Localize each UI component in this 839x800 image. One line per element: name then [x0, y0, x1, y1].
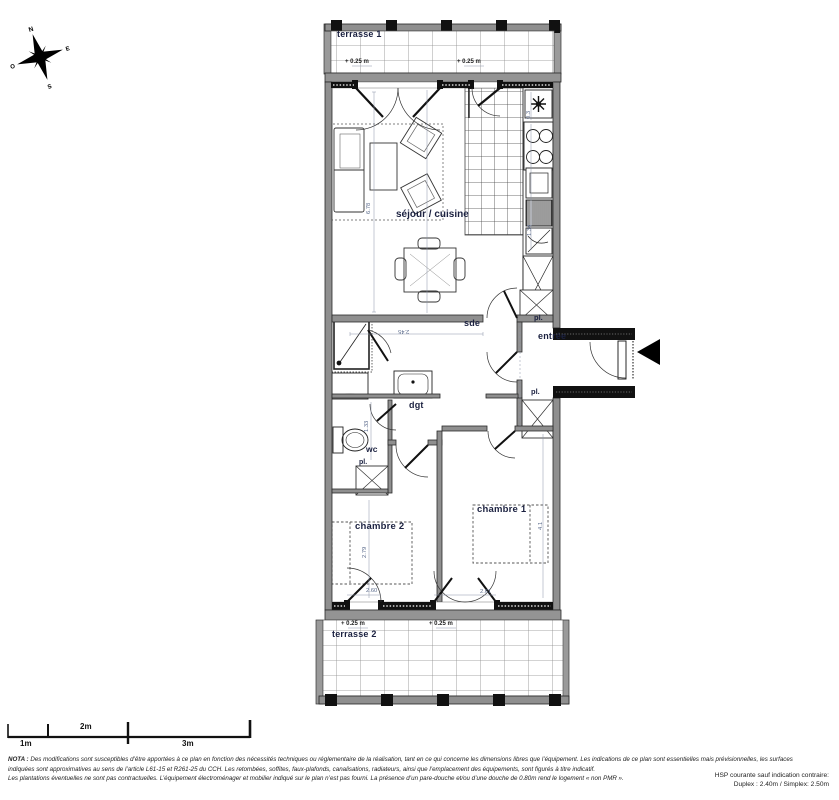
dim-kitchen-03: 0.3	[526, 111, 532, 119]
room-label-pl-bottom: pl.	[531, 387, 540, 396]
compass-south-label: S	[47, 84, 53, 91]
fan-icon	[531, 96, 546, 112]
entrance-door-leaf	[618, 341, 626, 379]
room-label-sejour-cuisine: séjour / cuisine	[396, 209, 469, 220]
compass-east-label: E	[65, 46, 71, 53]
compass-north-label: N	[28, 26, 35, 34]
room-label-chambre1: chambre 1	[477, 504, 526, 515]
dim-window-chambre1: 2.61	[480, 589, 491, 595]
compass-icon: N E S O	[0, 17, 80, 100]
dim-sejour-height: 6.78	[366, 203, 372, 214]
nota-line1: Des modifications sont susceptibles d’êt…	[30, 756, 793, 763]
level-label-t2-right: + 0.25 m	[429, 621, 453, 627]
dim-kitchen-134: 1.34	[527, 225, 533, 236]
room-label-terrasse2: terrasse 2	[332, 629, 377, 639]
dim-sde-width: 2.45	[398, 328, 409, 334]
floor-plan-page: N E S O terrasse 1 + 0.25 m + 0.25 m séj…	[0, 0, 839, 800]
level-label-t1-left: + 0.25 m	[345, 59, 369, 65]
room-label-chambre2: chambre 2	[355, 521, 404, 532]
kitchen-floor-tiles	[465, 88, 523, 235]
dim-chambre1-height: 4.1	[538, 522, 544, 530]
scale-label-1m: 1m	[20, 739, 32, 748]
dim-chambre2-height: 2.79	[362, 547, 368, 558]
dishwasher	[526, 200, 552, 226]
kitchen-appliances	[523, 88, 553, 315]
hsp-note: HSP courante sauf indication contraire: …	[559, 771, 829, 789]
room-label-pl-wc: pl.	[359, 459, 367, 466]
scale-label-3m: 3m	[182, 739, 194, 748]
level-label-t1-right: + 0.25 m	[457, 59, 481, 65]
level-label-t2-left: + 0.25 m	[341, 621, 365, 627]
room-label-entree: entrée	[538, 331, 566, 341]
dim-wc-height: 1.33	[364, 421, 370, 432]
room-label-pl-top: pl.	[534, 313, 543, 322]
scale-label-2m: 2m	[80, 722, 92, 731]
nota-label: NOTA :	[8, 756, 29, 763]
room-label-dgt: dgt	[409, 400, 424, 410]
compass-west-label: O	[10, 64, 17, 71]
scale-bar	[8, 720, 250, 744]
entrance-arrow-icon	[637, 339, 660, 365]
room-label-wc: wc	[366, 444, 378, 454]
hsp-line1: HSP courante sauf indication contraire:	[559, 771, 829, 780]
hsp-line2: Duplex : 2.40m / Simplex: 2.50m	[559, 780, 829, 789]
room-label-sde: sde	[464, 318, 480, 328]
dim-window-chambre2: 2.60	[366, 588, 377, 594]
room-label-terrasse1: terrasse 1	[337, 29, 382, 39]
